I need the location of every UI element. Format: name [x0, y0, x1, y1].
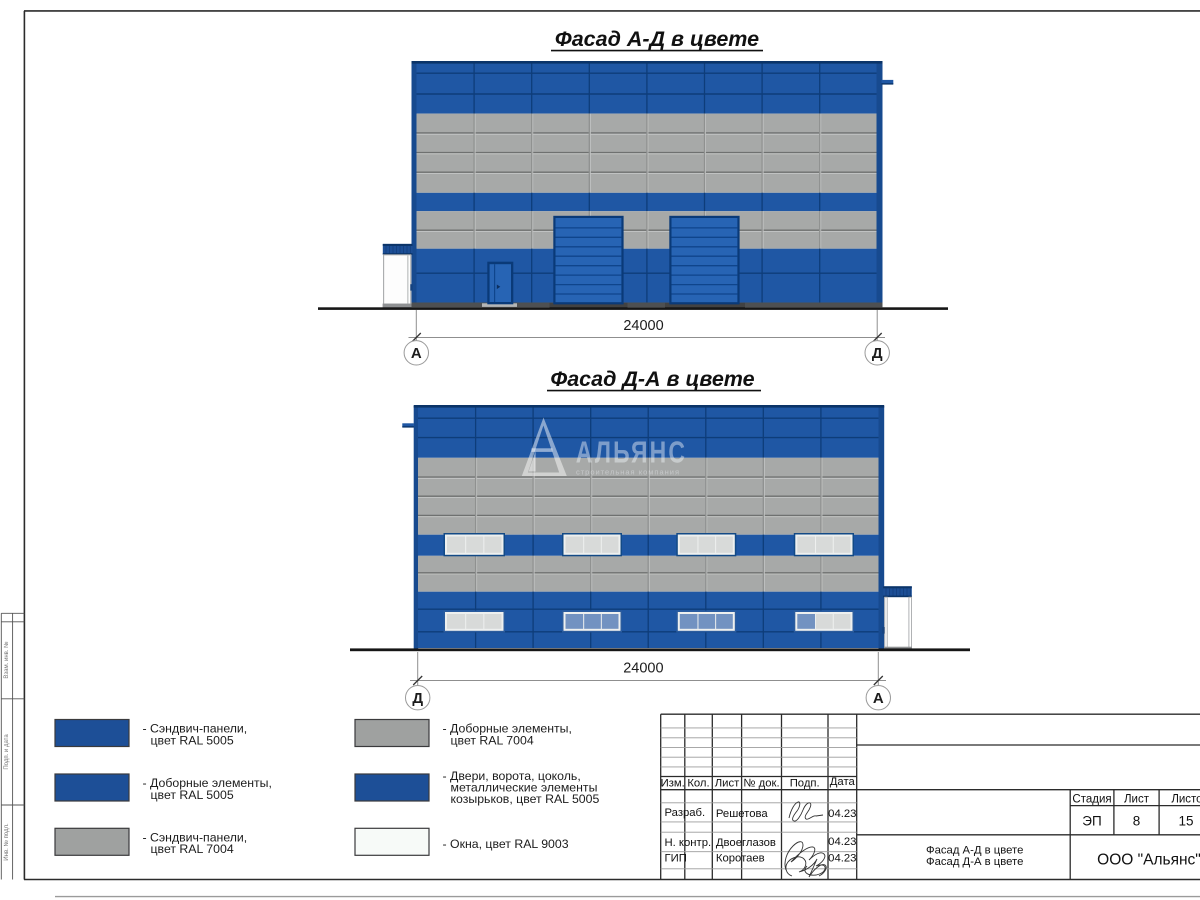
svg-text:Изм.: Изм.: [661, 777, 685, 789]
svg-text:Двоеглазов: Двоеглазов: [716, 837, 776, 849]
svg-text:04.23: 04.23: [828, 808, 856, 820]
svg-text:04.23: 04.23: [828, 853, 856, 865]
svg-text:04.23: 04.23: [828, 836, 856, 848]
svg-text:Коротаев: Коротаев: [716, 853, 765, 865]
svg-text:Фасад А-Д в цвете: Фасад А-Д в цвете: [555, 27, 759, 51]
svg-text:Разраб.: Разраб.: [665, 807, 706, 819]
svg-text:цвет RAL 5005: цвет RAL 5005: [151, 733, 234, 747]
svg-text:Фасад Д-А в цвете: Фасад Д-А в цвете: [550, 367, 754, 391]
svg-text:Стадия: Стадия: [1072, 794, 1111, 806]
svg-text:козырьков, цвет RAL 5005: козырьков, цвет RAL 5005: [451, 792, 600, 806]
svg-text:Инв. № подл.: Инв. № подл.: [3, 823, 10, 861]
svg-text:Подп. и дата: Подп. и дата: [4, 734, 10, 770]
svg-text:А: А: [873, 690, 884, 707]
svg-text:Д: Д: [412, 690, 423, 707]
svg-text:Подп.: Подп.: [790, 777, 820, 789]
svg-text:- Окна, цвет RAL 9003: - Окна, цвет RAL 9003: [443, 837, 569, 851]
svg-text:Листов: Листов: [1171, 794, 1200, 806]
svg-text:Фасад А-Д в цвете: Фасад А-Д в цвете: [926, 844, 1023, 856]
svg-text:Кол.: Кол.: [687, 777, 709, 789]
svg-text:цвет RAL 7004: цвет RAL 7004: [151, 842, 234, 856]
svg-text:цвет RAL 7004: цвет RAL 7004: [451, 733, 534, 747]
svg-text:Д: Д: [872, 345, 883, 362]
svg-text:Решетова: Решетова: [716, 808, 768, 820]
svg-text:АЛЬЯНС: АЛЬЯНС: [576, 434, 687, 469]
svg-text:24000: 24000: [623, 318, 663, 334]
svg-text:Дата: Дата: [830, 776, 856, 788]
svg-text:Лист: Лист: [1124, 794, 1150, 806]
svg-text:А: А: [411, 345, 422, 362]
svg-text:ЭП: ЭП: [1082, 813, 1101, 828]
svg-text:24000: 24000: [623, 661, 663, 677]
svg-text:15: 15: [1178, 813, 1193, 828]
svg-text:цвет RAL 5005: цвет RAL 5005: [151, 788, 234, 802]
svg-text:8: 8: [1133, 813, 1141, 828]
svg-text:Взам. инв. №: Взам. инв. №: [3, 641, 10, 678]
svg-text:ГИП: ГИП: [665, 853, 687, 865]
svg-text:ООО "Альянс": ООО "Альянс": [1097, 852, 1200, 869]
svg-text:строительная компания: строительная компания: [576, 468, 680, 477]
svg-text:Н. контр.: Н. контр.: [665, 837, 712, 849]
svg-text:№ док.: № док.: [743, 777, 779, 789]
svg-text:Фасад Д-А в цвете: Фасад Д-А в цвете: [926, 856, 1023, 868]
svg-text:Лист: Лист: [715, 777, 740, 789]
